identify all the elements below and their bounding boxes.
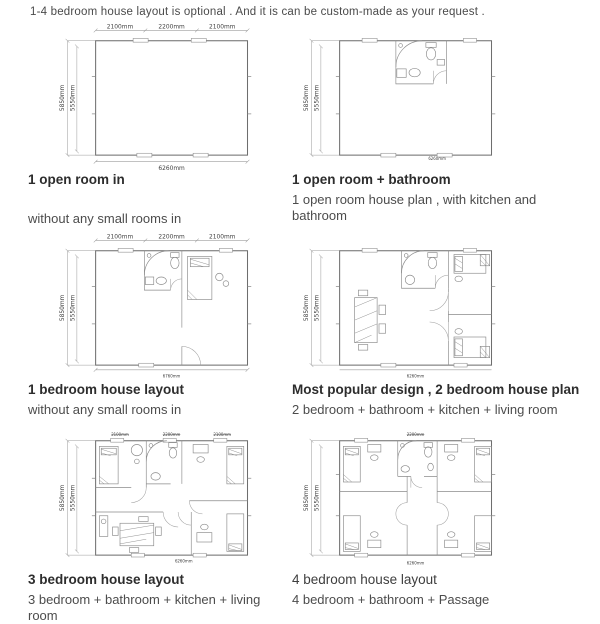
intro-text: 1-4 bedroom house layout is optional . A… (0, 0, 600, 22)
dim-top-1: 2100mm (107, 25, 134, 31)
plan-subtitle: 3 bedroom + bathroom + kitchen + living … (28, 592, 292, 624)
dim-left-outer: 5850mm (304, 84, 310, 111)
bathroom (402, 251, 449, 289)
bedroom-bottom-right (445, 516, 492, 552)
floor-plan-three-bedroom-image: 2100mm 2200mm 2100mm 5850mm 5550mm 6260m… (52, 422, 278, 572)
bedroom-bottom-right (197, 514, 244, 552)
dim-top-tiny: 2200mm (407, 432, 425, 437)
dim-left-outer: 5850mm (304, 484, 310, 511)
dining-table (355, 290, 386, 350)
dim-top-3: 2100mm (213, 432, 231, 437)
dim-top-3: 2100mm (209, 235, 236, 241)
dimension-lines: 2200mm 5850mm 5550mm 6260mm (304, 432, 425, 565)
caption-three-bedroom: 3 bedroom house layout 3 bedroom + bathr… (28, 572, 292, 624)
dim-bottom-tiny: 6260mm (407, 561, 425, 566)
bathroom (144, 251, 182, 290)
plan-title: Most popular design , 2 bedroom house pl… (292, 382, 600, 399)
room-outline (336, 438, 495, 557)
plan-title: 1 open room + bathroom (292, 172, 574, 189)
floor-plan-one-bedroom-image: 2100mm 2200mm 2100mm 5850mm 5550mm 6760m… (52, 232, 278, 382)
room-outline (336, 38, 495, 157)
plan-subtitle: without any small rooms in (28, 211, 292, 227)
dimension-lines: 2100mm 2200mm 2100mm 5850mm 5550mm 6760m… (60, 235, 250, 379)
dimension-lines: 2100mm 2200mm 2100mm 5850mm 5550mm 6260m… (60, 25, 250, 172)
bedroom-top-left (343, 445, 381, 483)
plan-title: 1 bedroom house layout (28, 382, 292, 399)
caption-open-room: 1 open room in without any small rooms i… (28, 172, 292, 232)
plan-two-bedroom: 5850mm 5550mm 6260mm (292, 232, 600, 382)
kitchen (99, 516, 161, 553)
bedroom-bottom-left (343, 516, 381, 552)
plan-open-room: 2100mm 2200mm 2100mm 5850mm 5550mm 6260m… (28, 22, 292, 172)
caption-two-bedroom: Most popular design , 2 bedroom house pl… (292, 382, 600, 422)
caption-open-room-bathroom: 1 open room + bathroom 1 open room house… (292, 172, 600, 232)
dim-top-3: 2100mm (209, 25, 236, 31)
bed-top (454, 255, 490, 282)
floor-plan-four-bedroom-image: 2200mm 5850mm 5550mm 6260mm (296, 422, 522, 572)
plan-open-room-bathroom: 5850mm 5550mm 6260mm (292, 22, 600, 172)
dim-top-1: 2100mm (107, 235, 134, 241)
dim-left-inner: 5550mm (71, 484, 77, 511)
dim-left-inner: 5550mm (315, 84, 321, 111)
dim-top-2: 2200mm (158, 235, 185, 241)
bathroom (398, 441, 434, 472)
caption-one-bedroom: 1 bedroom house layout without any small… (28, 382, 292, 422)
dim-top-2: 2200mm (163, 432, 181, 437)
bedroom-top-left (99, 445, 142, 484)
plan-one-bedroom: 2100mm 2200mm 2100mm 5850mm 5550mm 6760m… (28, 232, 292, 382)
plan-title: 4 bedroom house layout (292, 572, 600, 589)
plan-subtitle: 2 bedroom + bathroom + kitchen + living … (292, 402, 600, 418)
floor-plan-open-room-image: 2100mm 2200mm 2100mm 5850mm 5550mm 6260m… (52, 22, 278, 172)
bedroom-top-right (193, 445, 244, 484)
dimension-lines: 5850mm 5550mm 6260mm (304, 249, 492, 378)
dim-left-inner: 5550mm (71, 294, 77, 321)
bedroom-top-right (445, 445, 492, 483)
dim-top-2: 2200mm (158, 25, 185, 31)
plan-three-bedroom: 2100mm 2200mm 2100mm 5850mm 5550mm 6260m… (28, 422, 292, 572)
dim-left-inner: 5550mm (71, 84, 77, 111)
dim-bottom-tiny: 6760mm (163, 373, 181, 378)
caption-four-bedroom: 4 bedroom house layout 4 bedroom + bathr… (292, 572, 600, 624)
dim-bottom-tiny: 6260mm (407, 373, 425, 378)
room-outline (92, 438, 251, 557)
dim-left-outer: 5850mm (60, 294, 66, 321)
dim-top-1: 2100mm (111, 432, 129, 437)
dim-bottom-tiny: 6260mm (175, 559, 193, 564)
plan-title: 3 bedroom house layout (28, 572, 292, 589)
room-outline (92, 38, 251, 157)
dimension-lines: 2100mm 2200mm 2100mm 5850mm 5550mm 6260m… (60, 432, 231, 564)
room-outline (336, 248, 495, 367)
bedroom-walls (430, 251, 492, 365)
dimension-lines: 5850mm 5550mm 6260mm (304, 39, 446, 161)
dim-left-outer: 5850mm (304, 294, 310, 321)
plan-subtitle: 1 open room house plan , with kitchen an… (292, 192, 574, 225)
plan-four-bedroom: 2200mm 5850mm 5550mm 6260mm (292, 422, 600, 572)
dim-left-outer: 5850mm (60, 84, 66, 111)
bedroom (182, 256, 229, 365)
dim-left-outer: 5850mm (60, 484, 66, 511)
bathroom (146, 441, 177, 480)
floor-plan-open-room-bathroom-image: 5850mm 5550mm 6260mm (296, 22, 522, 172)
dim-left-inner: 5550mm (315, 294, 321, 321)
floor-plan-two-bedroom-image: 5850mm 5550mm 6260mm (296, 232, 522, 382)
bathroom (396, 41, 447, 84)
product-description-page: 1-4 bedroom house layout is optional . A… (0, 0, 600, 600)
interior-walls (340, 441, 492, 555)
plan-title: 1 open room in (28, 172, 292, 189)
plan-subtitle: 4 bedroom + bathroom + Passage (292, 592, 600, 608)
plan-subtitle: without any small rooms in (28, 402, 292, 418)
bed-bottom (454, 329, 490, 358)
floor-plan-grid: 2100mm 2200mm 2100mm 5850mm 5550mm 6260m… (0, 22, 600, 624)
dim-left-inner: 5550mm (315, 484, 321, 511)
